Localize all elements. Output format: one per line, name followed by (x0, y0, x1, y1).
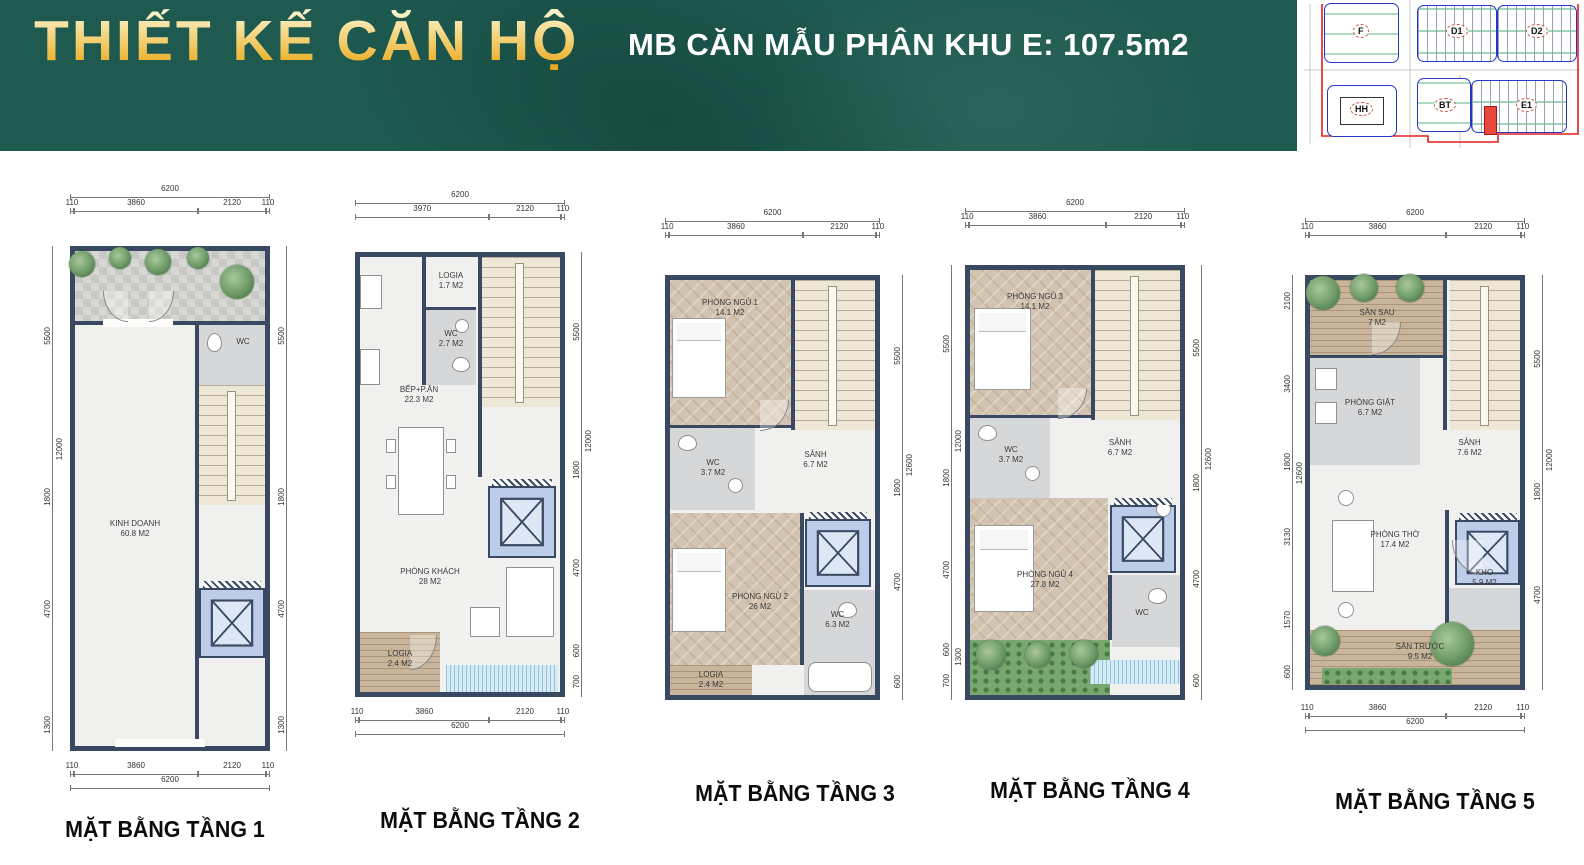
tree-icon (1310, 626, 1340, 656)
bed (974, 308, 1031, 390)
toilet-icon (678, 435, 697, 451)
plan-title: MẶT BẰNG TẦNG 3 (656, 780, 935, 807)
wall (478, 257, 482, 477)
dim-label: 12000 (584, 430, 593, 452)
chair-icon (446, 475, 456, 489)
dims-left: 2100 3400 1800 3130 1570 600 12600 (1283, 275, 1305, 690)
chair-icon (446, 439, 456, 453)
dim-label: 1300 (954, 648, 963, 666)
stool-icon (1338, 490, 1354, 506)
bed (672, 318, 726, 398)
room-label-sanh: SẢNH 7.6 M2 (1422, 438, 1517, 459)
dims-bottom: 110 3860 2120 110 6200 (70, 763, 270, 791)
dim-label: 6200 (1066, 198, 1084, 207)
site-label-bt: BT (1434, 98, 1456, 112)
dim-label: 5500 (572, 323, 581, 341)
dim-label: 110 (556, 204, 569, 213)
room-label-sanh: SẢNH 6.7 M2 (1065, 438, 1175, 459)
elevator (199, 588, 265, 658)
dims-right: 5500 1800 4700 12000 (1533, 275, 1555, 690)
dim-label: 2120 (1134, 212, 1152, 221)
dim-label: 3130 (1283, 528, 1292, 546)
tree-icon (1396, 274, 1424, 302)
dim-label: 4700 (942, 561, 951, 579)
dim-label: 4700 (43, 600, 52, 618)
dim-label: 1300 (277, 716, 286, 734)
dims-right: 5500 1800 4700 600 12600 (1192, 265, 1214, 700)
wall (426, 307, 476, 310)
room-label-kho: KHO 5.9 M2 (1449, 568, 1520, 589)
dim-label: 3860 (1369, 703, 1387, 712)
dim-label: 3860 (727, 222, 745, 231)
floor-plan-1: 6200 110 3860 2120 110 5500 1800 4700 13… (15, 186, 315, 865)
wall (1443, 280, 1447, 430)
dim-label: 4700 (1192, 570, 1201, 588)
glass-canopy (446, 665, 558, 692)
room-label-wc: WC (225, 337, 261, 347)
dim-label: 2120 (223, 198, 241, 207)
dim-label: 5500 (1533, 350, 1542, 368)
dim-label: 12000 (954, 430, 963, 452)
tree-icon (109, 247, 131, 269)
dim-label: 3860 (1029, 212, 1047, 221)
stair-rail (828, 286, 837, 426)
dim-label: 12600 (905, 454, 914, 476)
lift-door (1114, 498, 1172, 505)
plan-body: PHÒNG NGỦ 3 14.1 M2 WC 3.7 M2 SẢNH 6.7 M… (965, 265, 1185, 700)
wall (1310, 355, 1443, 358)
dim-label: 6200 (1406, 717, 1424, 726)
chair-icon (386, 439, 396, 453)
floor-plan-4: 6200 110 3860 2120 110 5500 1800 4700 60… (940, 192, 1240, 842)
toilet-icon (207, 333, 222, 352)
balcony-water-strip (1090, 660, 1180, 684)
plan-body: KINH DOANH 60.8 M2 WC (70, 246, 270, 751)
room-label-logia: LOGIA 2.4 M2 (672, 670, 750, 691)
wall (195, 325, 199, 746)
dims-bottom: 110 3860 2120 110 6200 (355, 709, 565, 737)
dim-label: 3970 (413, 204, 431, 213)
wall (1091, 270, 1095, 420)
sink-icon (1025, 466, 1040, 481)
chair-icon (386, 475, 396, 489)
room-sanh (755, 430, 875, 512)
site-label-f: F (1353, 24, 1369, 38)
toilet-icon (978, 425, 997, 441)
lift-door (1459, 513, 1517, 520)
dim-label: 110 (262, 761, 275, 770)
dim-label: 5500 (277, 327, 286, 345)
site-label-d2: D2 (1526, 24, 1548, 38)
plan-title: MẶT BẰNG TẦNG 2 (341, 807, 620, 834)
plan-title: MẶT BẰNG TẦNG 5 (1296, 788, 1575, 815)
coffee-table (470, 607, 500, 637)
dim-label: 2120 (1474, 703, 1492, 712)
dims-left: 5500 1800 4700 1300 12000 (43, 246, 65, 751)
tree-icon (69, 251, 95, 277)
dim-label: 110 (556, 707, 569, 716)
washer-icon (1315, 368, 1337, 390)
tree-icon (187, 247, 209, 269)
bathtub (808, 662, 872, 692)
room-label-ngu3: PHÒNG NGỦ 3 14.1 M2 (980, 292, 1090, 313)
dims-top: 6200 110 3860 2120 110 (70, 186, 270, 214)
header-band: THIẾT KẾ CĂN HỘ MB CĂN MẪU PHÂN KHU E: 1… (0, 0, 1297, 151)
floor-plan-3: 6200 110 3860 2120 110 5500 1800 4700 60… (645, 200, 945, 840)
dim-label: 6200 (451, 190, 469, 199)
stove-icon (360, 275, 382, 309)
dims-left: 5500 1800 4700 600 700 12000 1300 (942, 265, 964, 700)
stool-icon (1338, 602, 1354, 618)
room-label-kinh-doanh: KINH DOANH 60.8 M2 (75, 519, 195, 540)
dim-label: 110 (1516, 703, 1529, 712)
kitchen-sink-icon (360, 349, 380, 385)
site-label-d1: D1 (1446, 24, 1468, 38)
room-label-logia-bottom: LOGIA 2.4 M2 (360, 649, 440, 670)
lift-door (203, 581, 261, 588)
room-sanh (1050, 420, 1180, 500)
dim-label: 5500 (942, 335, 951, 353)
dims-right: 5500 1800 4700 600 12600 (893, 275, 915, 700)
dim-label: 1800 (43, 488, 52, 506)
site-plan-map: F D1 D2 HH BT E1 (1300, 0, 1584, 148)
tree-icon (1070, 640, 1098, 668)
dim-label: 6200 (161, 775, 179, 784)
dim-label: 4700 (572, 559, 581, 577)
dim-label: 600 (942, 643, 951, 656)
room-label-ngu2: PHÒNG NGỦ 2 26 M2 (705, 592, 815, 613)
room-label-giat: PHÒNG GIẶT 6.7 M2 (1320, 398, 1420, 419)
dim-label: 4700 (893, 573, 902, 591)
page-subtitle: MB CĂN MẪU PHÂN KHU E: 107.5m2 (628, 27, 1189, 63)
dim-label: 5500 (43, 327, 52, 345)
room-wc (199, 325, 265, 385)
dim-label: 700 (942, 674, 951, 687)
entrance-opening (115, 739, 205, 747)
room-label-wc1: WC 3.7 M2 (978, 445, 1044, 466)
dim-label: 110 (262, 198, 275, 207)
room-label-san-sau: SÂN SAU 7 M2 (1322, 308, 1432, 329)
dim-label: 12600 (1204, 448, 1213, 470)
dim-label: 2120 (516, 204, 534, 213)
back-area (199, 658, 265, 746)
dims-bottom: 110 3860 2120 110 6200 (1305, 705, 1525, 733)
plan-body: PHÒNG NGỦ 1 14.1 M2 WC 3.7 M2 SẢNH 6.7 M… (665, 275, 880, 700)
room-label-wc2: WC 6.3 M2 (810, 610, 865, 631)
dim-label: 1300 (43, 716, 52, 734)
plan-title: MẶT BẰNG TẦNG 4 (951, 777, 1230, 804)
dims-top: 6200 110 3860 2120 110 (965, 200, 1185, 228)
tree-icon (1025, 642, 1051, 668)
dims-top: 6200 110 3860 2120 110 (665, 210, 880, 238)
dims-top: 6200 3970 2120 110 (355, 192, 565, 220)
stair-rail (515, 263, 524, 403)
tree-icon (145, 249, 171, 275)
dim-label: 700 (572, 675, 581, 688)
room-label-wc: WC 2.7 M2 (426, 329, 476, 350)
dims-right: 5500 1800 4700 600 700 12000 (572, 252, 594, 697)
dim-label: 600 (893, 675, 902, 688)
dim-label: 2120 (516, 707, 534, 716)
room-label-khach: PHÒNG KHÁCH 28 M2 (370, 567, 490, 588)
dim-label: 2100 (1283, 292, 1292, 310)
room-label-ngu4: PHÒNG NGỦ 4 27.8 M2 (985, 570, 1105, 591)
dim-label: 110 (871, 222, 884, 231)
dims-top: 6200 110 3860 2120 110 (1305, 210, 1525, 238)
toilet-icon (1148, 588, 1167, 604)
elevator (805, 519, 871, 587)
dim-label: 1800 (893, 479, 902, 497)
sink-icon (728, 478, 743, 493)
dim-label: 1800 (1283, 453, 1292, 471)
dim-label: 110 (1516, 222, 1529, 231)
room-label-san-truoc: SÂN TRƯỚC 9.5 M2 (1365, 642, 1475, 663)
dim-label: 6200 (764, 208, 782, 217)
tree-icon (1306, 276, 1340, 310)
room-label-wc1: WC 3.7 M2 (680, 458, 746, 479)
bed (974, 525, 1034, 612)
site-label-e1: E1 (1516, 98, 1537, 112)
dim-label: 600 (1283, 665, 1292, 678)
dim-label: 6200 (451, 721, 469, 730)
site-label-hh: HH (1350, 102, 1373, 116)
door-opening (103, 319, 173, 327)
dim-label: 1800 (277, 488, 286, 506)
stair-rail (1480, 286, 1489, 426)
dims-right: 5500 1800 4700 1300 (277, 246, 299, 751)
bed (672, 548, 726, 632)
stair-rail (227, 391, 236, 501)
dim-label: 2120 (830, 222, 848, 231)
plan-body: SÂN SAU 7 M2 PHÒNG GIẶT 6.7 M2 SẢNH 7.6 … (1305, 275, 1525, 690)
stair-rail (1130, 276, 1139, 416)
dim-label: 12600 (1295, 462, 1304, 484)
page-title: THIẾT KẾ CĂN HỘ (34, 8, 579, 74)
lift-door (809, 512, 867, 519)
wall (970, 415, 1091, 418)
dim-label: 110 (1176, 212, 1189, 221)
planter-strip (1322, 668, 1452, 684)
plan-title: MẶT BẰNG TẦNG 1 (26, 816, 305, 843)
floor-plan-5: 6200 110 3860 2120 110 2100 3400 1800 31… (1285, 210, 1584, 860)
dim-label: 1800 (1192, 474, 1201, 492)
room-label-wc2: WC (1112, 608, 1172, 618)
highlighted-lot (1484, 106, 1497, 135)
tree-icon (1350, 274, 1378, 302)
room-label-tho: PHÒNG THỜ 17.4 M2 (1340, 530, 1450, 551)
dim-label: 600 (1192, 674, 1201, 687)
tree-icon (976, 640, 1006, 670)
dim-label: 3400 (1283, 375, 1292, 393)
dim-label: 600 (572, 644, 581, 657)
dim-label: 12000 (55, 438, 64, 460)
dining-table (398, 427, 444, 515)
lift-door (492, 479, 552, 486)
dim-label: 5500 (1192, 339, 1201, 357)
wall (800, 513, 804, 665)
tree-icon (220, 265, 254, 299)
room-label-ngu1: PHÒNG NGỦ 1 14.1 M2 (675, 298, 785, 319)
dim-label: 12000 (1545, 449, 1554, 471)
screenshot-root: THIẾT KẾ CĂN HỘ MB CĂN MẪU PHÂN KHU E: 1… (0, 0, 1584, 865)
dim-label: 1570 (1283, 611, 1292, 629)
dim-label: 1800 (572, 461, 581, 479)
dim-label: 6200 (161, 184, 179, 193)
wall (791, 280, 795, 430)
dim-label: 3860 (127, 761, 145, 770)
dim-label: 4700 (1533, 586, 1542, 604)
hallway (199, 505, 265, 585)
elevator (488, 486, 556, 558)
dim-label: 1800 (942, 469, 951, 487)
dim-label: 2120 (223, 761, 241, 770)
floor-plan-2: 6200 3970 2120 110 5500 1800 4700 600 70… (330, 192, 630, 852)
sofa (506, 567, 554, 637)
room-label-sanh: SẢNH 6.7 M2 (758, 450, 873, 471)
room-label-logia-top: LOGIA 1.7 M2 (426, 271, 476, 292)
dim-label: 4700 (277, 600, 286, 618)
dim-label: 2120 (1474, 222, 1492, 231)
toilet-icon (452, 357, 470, 372)
plan-body: BẾP+P.ĂN 22.3 M2 LOGIA 1.7 M2 WC 2.7 M2 … (355, 252, 565, 697)
dim-label: 3860 (1369, 222, 1387, 231)
dim-label: 1800 (1533, 483, 1542, 501)
dim-label: 3860 (127, 198, 145, 207)
dim-label: 5500 (893, 347, 902, 365)
dim-label: 3860 (415, 707, 433, 716)
dim-label: 6200 (1406, 208, 1424, 217)
room-label-bep: BẾP+P.ĂN 22.3 M2 (360, 385, 478, 406)
